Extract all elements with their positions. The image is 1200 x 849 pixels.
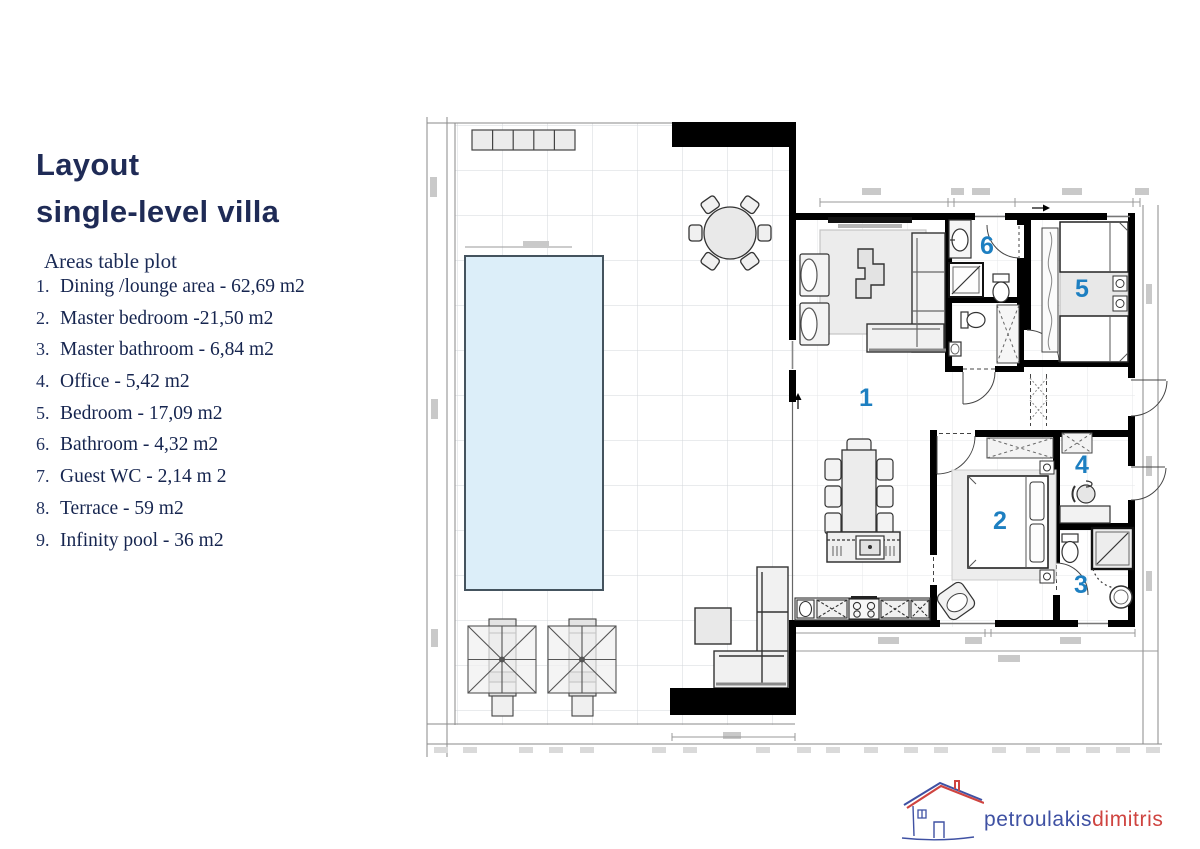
lounge-furniture — [800, 217, 946, 352]
area-item-number: 9. — [36, 530, 60, 551]
area-item-text: Dining /lounge area - 62,69 m2 — [60, 276, 305, 298]
areas-table: 1.Dining /lounge area - 62,69 m2 2.Maste… — [36, 276, 305, 561]
area-item: 7.Guest WC - 2,14 m 2 — [36, 466, 305, 498]
area-item: 4.Office - 5,42 m2 — [36, 371, 305, 403]
area-item-text: Master bathroom - 6,84 m2 — [60, 339, 274, 361]
room-number-2: 2 — [993, 507, 1007, 535]
area-item: 5.Bedroom - 17,09 m2 — [36, 403, 305, 435]
kitchen-counter — [795, 596, 930, 620]
logo-name-red: dimitris — [1092, 808, 1163, 831]
area-item-text: Bathroom - 4,32 m2 — [60, 434, 218, 456]
title-line-1: Layout — [36, 141, 279, 188]
sunbeds-row — [472, 130, 575, 150]
room-number-1: 1 — [859, 384, 873, 412]
area-item: 6.Bathroom - 4,32 m2 — [36, 434, 305, 466]
house-sketch-icon — [898, 776, 984, 846]
area-item: 1.Dining /lounge area - 62,69 m2 — [36, 276, 305, 308]
page: Layout single-level villa Areas table pl… — [0, 0, 1200, 849]
area-item-number: 1. — [36, 276, 60, 297]
area-item-text: Terrace - 59 m2 — [60, 498, 184, 520]
room-number-3: 3 — [1074, 571, 1088, 599]
area-item: 8.Terrace - 59 m2 — [36, 498, 305, 530]
area-item-text: Infinity pool - 36 m2 — [60, 530, 224, 552]
logo: petroulakisdimitris — [898, 776, 1188, 846]
page-title: Layout single-level villa — [36, 141, 279, 235]
area-item: 3.Master bathroom - 6,84 m2 — [36, 339, 305, 371]
room-number-5: 5 — [1075, 275, 1089, 303]
area-item: 2.Master bedroom -21,50 m2 — [36, 308, 305, 340]
area-item-number: 6. — [36, 434, 60, 455]
room-number-6: 6 — [980, 232, 994, 260]
infinity-pool — [465, 256, 603, 590]
area-item-number: 7. — [36, 466, 60, 487]
area-item-number: 2. — [36, 308, 60, 329]
title-line-2: single-level villa — [36, 188, 279, 235]
room-number-4: 4 — [1075, 451, 1089, 479]
logo-name-blue: petroulakis — [984, 808, 1092, 831]
areas-table-heading: Areas table plot — [44, 249, 177, 274]
area-item-text: Master bedroom -21,50 m2 — [60, 308, 273, 330]
area-item-text: Bedroom - 17,09 m2 — [60, 403, 222, 425]
area-item-text: Office - 5,42 m2 — [60, 371, 190, 393]
area-item-number: 3. — [36, 339, 60, 360]
area-item-text: Guest WC - 2,14 m 2 — [60, 466, 226, 488]
logo-text: petroulakisdimitris — [984, 808, 1163, 832]
area-item-number: 5. — [36, 403, 60, 424]
area-item-number: 4. — [36, 371, 60, 392]
area-item: 9.Infinity pool - 36 m2 — [36, 530, 305, 562]
floor-plan: 1 2 3 4 5 6 — [420, 105, 1168, 765]
area-item-number: 8. — [36, 498, 60, 519]
